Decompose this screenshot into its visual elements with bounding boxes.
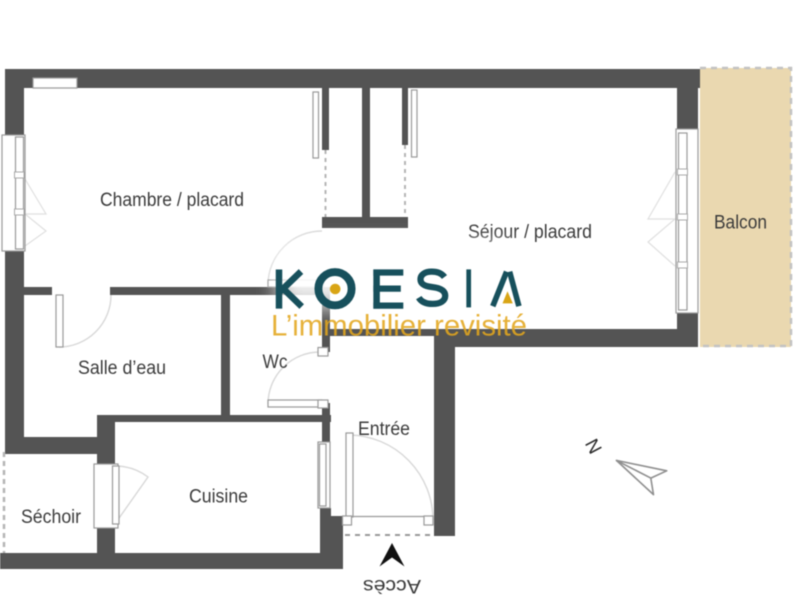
svg-text:Séjour / placard: Séjour / placard [468,222,592,243]
svg-text:Accès: Accès [363,575,421,596]
svg-text:L’immobilier revisité: L’immobilier revisité [271,310,527,343]
svg-text:Chambre / placard: Chambre / placard [100,190,244,211]
svg-text:Séchoir: Séchoir [21,507,82,528]
svg-text:Wc: Wc [263,352,288,373]
svg-text:Salle d’eau: Salle d’eau [78,358,166,379]
svg-text:Entrée: Entrée [358,419,410,440]
svg-text:Balcon: Balcon [714,213,767,234]
svg-text:Cuisine: Cuisine [189,487,248,508]
